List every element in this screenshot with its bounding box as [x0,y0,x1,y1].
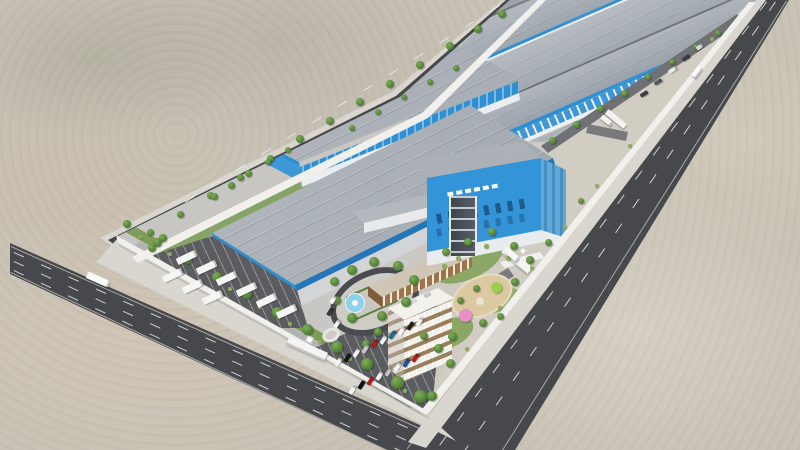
vehicle [375,371,383,381]
tree [159,234,167,242]
tree [464,238,472,246]
vehicle [388,330,396,340]
tree [427,391,437,401]
vehicle [682,54,691,62]
tree [597,105,604,112]
tree [434,344,443,353]
bush [465,347,469,351]
vehicle [366,376,374,386]
tree [427,79,433,85]
tree [356,98,364,106]
vehicle [411,353,419,363]
tree [446,42,454,50]
tree [669,59,675,65]
tree [498,10,506,18]
tree [510,242,518,250]
bush [138,235,142,239]
vehicle [415,317,423,327]
vehicle [162,268,184,283]
tree [393,261,403,271]
bush [456,256,461,261]
vehicle [393,362,401,372]
vehicle [334,357,342,367]
vehicle [402,358,410,368]
tree [645,74,651,80]
vehicle [600,114,613,126]
tree [545,239,552,246]
vehicle [348,385,356,395]
tree [237,174,244,181]
tree [442,248,450,256]
bush [530,266,534,270]
tree [245,170,252,177]
tree [497,313,504,320]
vehicle [256,293,278,308]
bush [595,184,599,188]
vehicle [86,271,111,287]
bush [318,340,322,344]
bush [228,287,232,291]
vehicle [276,304,298,319]
tree [374,328,382,336]
bush [403,389,407,393]
bush [442,264,447,269]
tree [331,341,343,353]
tree [326,117,334,125]
tree [409,275,419,285]
vehicle [691,65,703,78]
tree [621,90,628,97]
tree [549,137,556,144]
tree [296,135,304,143]
tree [578,198,584,204]
vehicle [379,335,387,345]
vehicle [202,290,224,305]
bush [288,322,292,326]
tree [330,277,339,286]
tree [511,278,519,286]
vehicle [406,321,414,331]
bush [628,144,632,148]
tree [391,376,404,389]
tree [414,390,427,403]
tree [361,358,373,370]
vehicle [182,279,204,294]
tree [448,332,457,341]
tree [377,311,387,321]
tree [349,125,355,131]
vehicle [640,90,649,98]
tree [347,265,357,275]
vehicle [397,326,405,336]
tree [177,211,184,218]
industrial-park-render [0,0,800,450]
tree [228,182,235,189]
tree [457,297,464,304]
bush [168,252,172,256]
tree [375,109,381,115]
vehicle [326,308,334,317]
scene-objects [0,0,800,450]
tree [573,121,580,128]
tree [386,80,394,88]
vehicle [357,380,365,390]
tree [265,159,271,165]
tree [401,297,411,307]
tree [369,257,379,267]
tree [474,25,482,33]
bush [710,37,714,41]
bush [563,225,567,229]
vehicle [384,367,392,377]
tree [401,94,407,100]
tree [473,285,480,292]
tree [416,61,424,69]
tree [488,228,496,236]
bush [484,244,489,249]
bush [498,306,502,310]
tree [453,65,459,71]
tree [123,220,131,228]
tree [347,313,357,323]
tree [302,324,313,335]
tree [715,30,721,36]
tree [147,229,154,236]
tree [526,256,534,264]
tree [211,193,218,200]
vehicle [668,66,678,74]
vehicle [370,339,378,349]
vehicle [333,320,341,329]
tree [148,244,156,252]
tree [446,359,455,368]
vehicle [654,78,663,86]
tree [479,319,487,327]
tree [420,332,428,340]
vehicle [352,348,360,358]
tree [285,147,291,153]
